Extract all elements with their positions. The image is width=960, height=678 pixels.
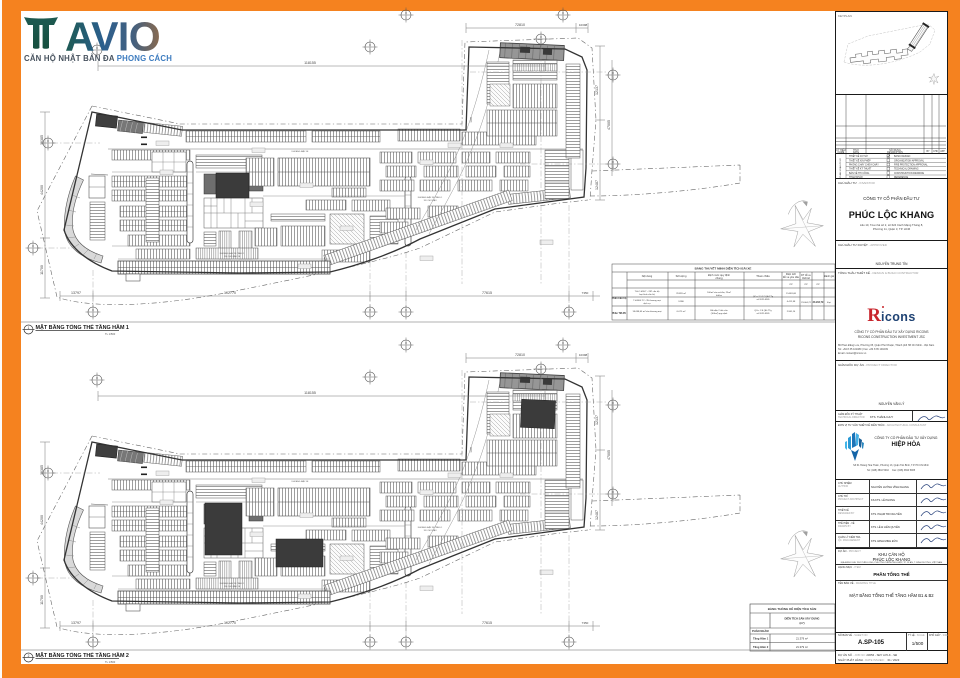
svg-text:ORGANIZATION APPROVAL: ORGANIZATION APPROVAL [894, 159, 925, 162]
svg-text:NAME: NAME [838, 151, 845, 153]
svg-text:1: 1 [28, 326, 30, 330]
svg-text:THIẾT KẾ XIN PHÉP: THIẾT KẾ XIN PHÉP [849, 159, 871, 162]
svg-text:16385: 16385 [40, 135, 44, 145]
svg-text:(100m²) quy định: (100m²) quy định [711, 312, 728, 315]
svg-text:1: 1 [32, 248, 34, 252]
svg-text:12137: 12137 [595, 85, 599, 95]
svg-text:X: X [612, 160, 614, 164]
svg-text:KHOANG ĐẬU XE TẦNG 1: KHOANG ĐẬU XE TẦNG 1 [418, 196, 443, 199]
svg-text:21.379 m²: 21.379 m² [796, 645, 808, 649]
svg-text:12487: 12487 [595, 180, 599, 190]
svg-text:18.098,45 m² sàn thương mại: 18.098,45 m² sàn thương mại [633, 310, 662, 313]
svg-text:Số lượng: Số lượng [676, 274, 687, 278]
svg-text:m²: m² [817, 283, 820, 286]
svg-text:6.071 m²: 6.071 m² [677, 310, 686, 313]
svg-text:2.941,14: 2.941,14 [787, 311, 796, 313]
svg-text:X: X [612, 71, 614, 75]
svg-text:Tầng Hầm 2: Tầng Hầm 2 [753, 645, 769, 649]
svg-text:(m²): (m²) [799, 621, 804, 625]
svg-text:10398: 10398 [579, 23, 588, 27]
svg-text:118155: 118155 [304, 61, 316, 65]
svg-text:m²: m² [805, 283, 808, 286]
svg-text:PHẦN NGẦM: PHẦN NGẦM [752, 629, 769, 633]
svg-text:FIRE PROTECTION APPROVAL: FIRE PROTECTION APPROVAL [894, 164, 928, 167]
svg-text:2: 2 [28, 654, 30, 658]
svg-text:X: X [47, 139, 49, 143]
svg-text:Đánh giá: Đánh giá [824, 275, 834, 278]
svg-text:X: X [562, 11, 564, 15]
svg-text:72810: 72810 [515, 23, 525, 27]
svg-text:THIẾT KẾ CƠ SỞ: THIẾT KẾ CƠ SỞ [849, 155, 868, 158]
svg-text:150 CHỖ ĐẬU XE: 150 CHỖ ĐẬU XE [224, 255, 241, 258]
svg-text:1: 1 [568, 312, 570, 316]
svg-text:4.412,58: 4.412,58 [787, 301, 796, 303]
svg-text:120 CHỖ ĐẬU: 120 CHỖ ĐẬU [423, 199, 437, 202]
svg-text:PHÒNG CHÁY CHỮA CHÁY: PHÒNG CHÁY CHỮA CHÁY [849, 164, 879, 167]
svg-text:THIẾT KẾ KỸ THUẬT: THIẾT KẾ KỸ THUẬT [849, 168, 872, 171]
svg-text:chung: chung [715, 276, 723, 280]
svg-text:DESCRIPTION: DESCRIPTION [887, 152, 903, 153]
svg-text:13797: 13797 [71, 291, 81, 295]
svg-text:Tham chiếu: Tham chiếu [756, 274, 770, 278]
svg-text:X: X [369, 308, 371, 312]
svg-text:1: 1 [612, 164, 614, 168]
svg-text:X: X [405, 11, 407, 15]
svg-text:T.H.M.B.T.2 - 95 thương mại: T.H.M.B.T.2 - 95 thương mại [633, 299, 661, 302]
svg-text:TL 1/500: TL 1/500 [105, 332, 116, 336]
svg-text:1: 1 [562, 15, 564, 19]
svg-text:102770: 102770 [224, 291, 236, 295]
svg-text:Bãi đậu 2 thứ cấu: Bãi đậu 2 thứ cấu [710, 309, 728, 312]
svg-text:1: 1 [405, 15, 407, 19]
svg-text:số 2021-BXD: số 2021-BXD [756, 298, 769, 301]
svg-text:1: 1 [405, 312, 407, 316]
svg-text:1: 1 [369, 312, 371, 316]
svg-text:QCu. 2.6 QĐ-TTg: QCu. 2.6 QĐ-TTg [754, 310, 772, 312]
svg-text:CHK: CHK [933, 151, 938, 153]
svg-text:QCu. 2.1.17 QĐ-TTg: QCu. 2.1.17 QĐ-TTg [753, 296, 774, 298]
svg-text:77615: 77615 [482, 291, 492, 295]
svg-text:3.996: 3.996 [678, 301, 684, 303]
svg-text:BẢNG THỒNG KÊ DIỆN TÍCH SÀN: BẢNG THỒNG KÊ DIỆN TÍCH SÀN [768, 606, 817, 611]
svg-text:BASIC DESIGN: BASIC DESIGN [894, 155, 911, 158]
svg-text:1: 1 [612, 75, 614, 79]
svg-text:100m² sàn xe/căn, 25m²: 100m² sàn xe/căn, 25m² [707, 291, 731, 294]
svg-text:11700: 11700 [40, 265, 44, 275]
svg-text:1: 1 [47, 143, 49, 147]
svg-text:15.881,08: 15.881,08 [786, 293, 797, 295]
svg-text:APP: APP [940, 150, 945, 153]
svg-text:BẢN VẼ THI CÔNG: BẢN VẼ THI CÔNG [849, 172, 869, 175]
svg-text:7350: 7350 [582, 291, 589, 295]
svg-text:TL 1/500: TL 1/500 [105, 660, 116, 664]
svg-text:78.891 m²: 78.891 m² [676, 292, 686, 295]
svg-text:21.379 m²: 21.379 m² [796, 637, 808, 641]
svg-text:1: 1 [540, 39, 542, 43]
svg-text:Nội dung: Nội dung [642, 274, 653, 278]
svg-text:1200: 1200 [470, 117, 473, 123]
svg-text:dịch vụ: dịch vụ [644, 303, 652, 305]
svg-text:BẢNG THUYẾT MINH DIỆN TÍCH BÃI: BẢNG THUYẾT MINH DIỆN TÍCH BÃI XE [695, 266, 752, 271]
svg-text:TECHNICAL DRAWING: TECHNICAL DRAWING [894, 168, 919, 171]
svg-text:X: X [405, 308, 407, 312]
svg-text:Đạt: Đạt [827, 301, 831, 304]
svg-text:loại hình căn hộ: loại hình căn hộ [639, 293, 655, 296]
svg-text:thiết kế: thiết kế [802, 277, 810, 280]
svg-text:X: X [92, 308, 94, 312]
svg-text:Phần Căn hộ: Phần Căn hộ [612, 297, 627, 300]
svg-text:23.294,79: 23.294,79 [813, 301, 824, 304]
svg-text:DATE: DATE [853, 151, 859, 153]
svg-text:X: X [369, 43, 371, 47]
svg-text:1: 1 [92, 312, 94, 316]
svg-text:X: X [32, 244, 34, 248]
svg-text:BY: BY [926, 151, 930, 153]
svg-text:PHÂN LOẠI HỒ SƠ: PHÂN LOẠI HỒ SƠ [839, 158, 842, 178]
svg-text:KHOANG ĐẬU XE: KHOANG ĐẬU XE [292, 150, 309, 153]
svg-text:AVIO: AVIO [65, 16, 160, 60]
svg-text:KHOANG ĐẬU XE TẦNG 1: KHOANG ĐẬU XE TẦNG 1 [220, 252, 245, 255]
svg-text:47005: 47005 [607, 120, 611, 130]
svg-text:Phần TM-DV: Phần TM-DV [612, 312, 626, 315]
svg-text:44200: 44200 [40, 185, 44, 195]
svg-text:m²: m² [790, 283, 793, 286]
svg-text:số 2021-BXD: số 2021-BXD [756, 312, 769, 315]
svg-text:ôtô/xe: ôtô/xe [716, 294, 723, 297]
svg-text:1: 1 [369, 47, 371, 51]
svg-text:CONSTRUCTION DRAWING: CONSTRUCTION DRAWING [894, 172, 924, 175]
svg-text:X: X [568, 308, 570, 312]
svg-text:X: X [540, 35, 542, 39]
svg-text:T.H.C.M.B.T - 287 căn hộ: T.H.C.M.B.T - 287 căn hộ [635, 290, 660, 293]
svg-text:Tầng Hầm 1: Tầng Hầm 1 [753, 637, 769, 641]
svg-text:23.064,72: 23.064,72 [801, 302, 812, 304]
